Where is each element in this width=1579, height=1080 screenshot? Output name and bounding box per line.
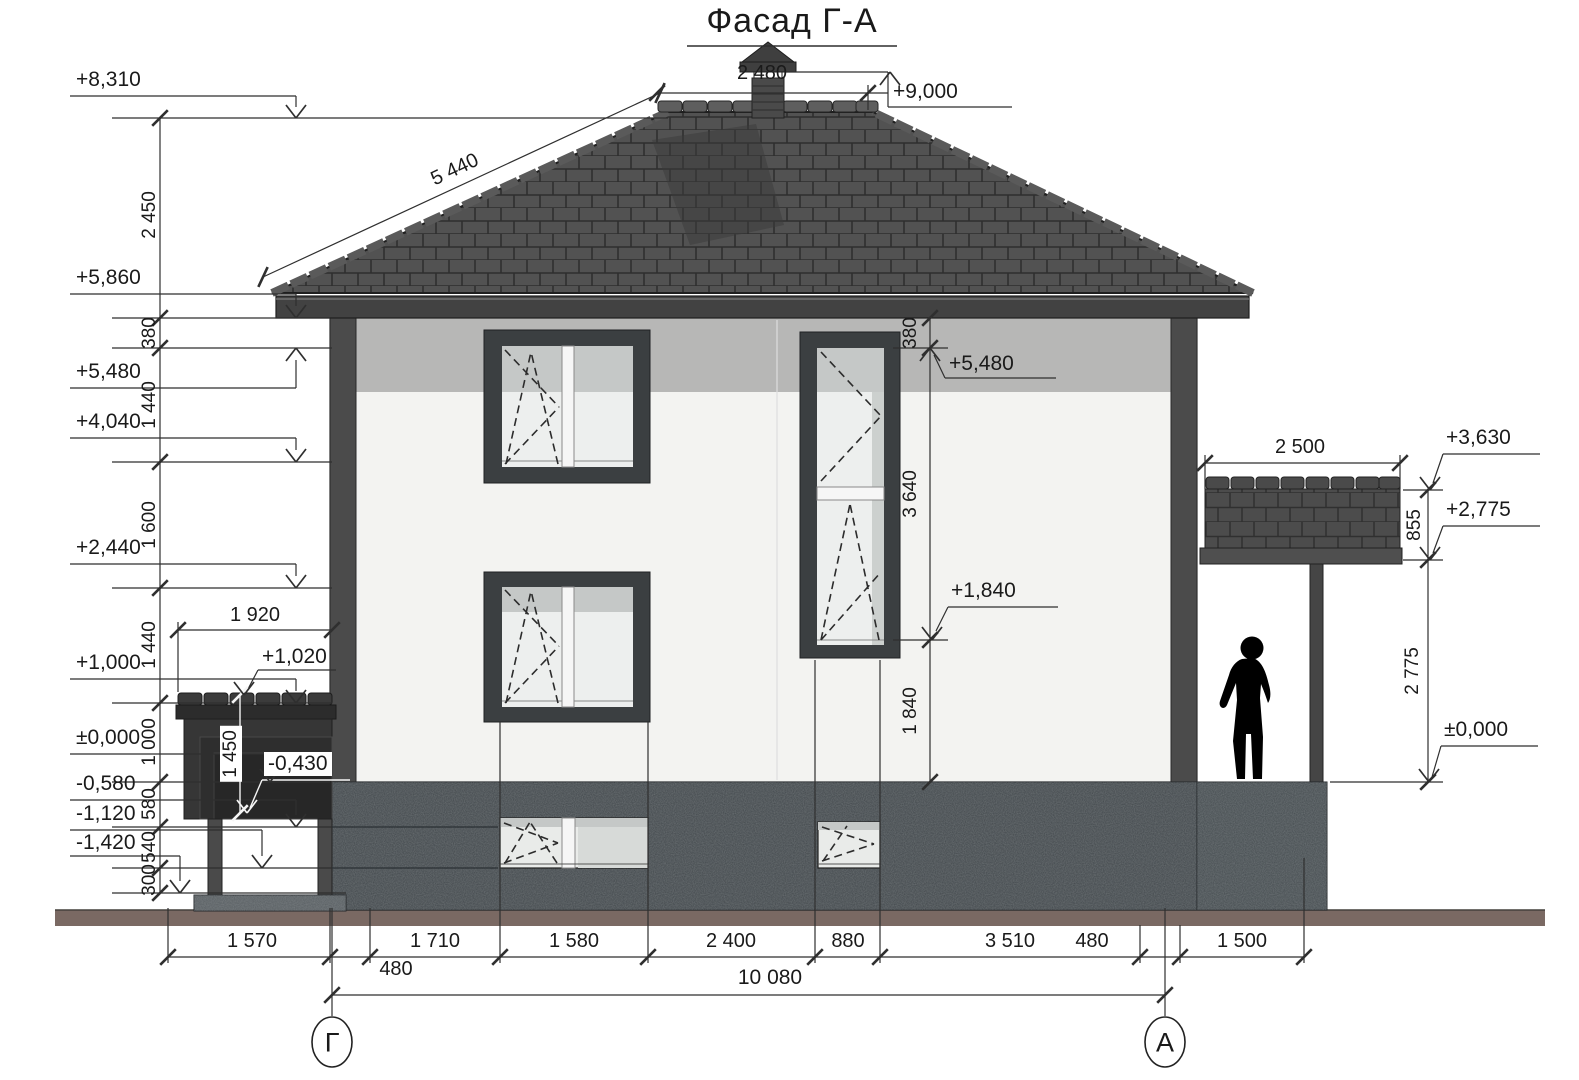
porch-ridge-caps bbox=[1206, 477, 1400, 489]
axis-bubbles bbox=[312, 1017, 1185, 1067]
main-wall bbox=[330, 318, 1197, 782]
dim-left-1440b: 1 440 bbox=[139, 621, 161, 669]
dim-left-2450: 2 450 bbox=[139, 191, 161, 239]
dim-bottom-offset-480: 480 bbox=[379, 958, 412, 981]
dim-roof-ridge: 2 480 bbox=[737, 62, 787, 85]
elevation-label-2440: +2,440 bbox=[76, 536, 141, 560]
dim-bottom-2400: 2 400 bbox=[706, 930, 756, 953]
dim-bottom-1710: 1 710 bbox=[410, 930, 460, 953]
person-silhouette bbox=[1220, 637, 1271, 780]
dim-left-540: 540 bbox=[139, 831, 161, 863]
elevation-label-zero-right: ±0,000 bbox=[1444, 718, 1508, 742]
dim-bottom-1570: 1 570 bbox=[227, 930, 277, 953]
elevation-label-4040: +4,040 bbox=[76, 410, 141, 434]
dim-left-1440a: 1 440 bbox=[139, 381, 161, 429]
dim-left-1000: 1 000 bbox=[139, 718, 161, 766]
elevation-label-zero-left: ±0,000 bbox=[76, 726, 140, 750]
elevation-label-minus1120: -1,120 bbox=[76, 802, 136, 826]
dim-porch-2775: 2 775 bbox=[1402, 647, 1424, 695]
dim-bottom-480: 480 bbox=[1075, 930, 1108, 953]
axis-marker-right: А bbox=[1156, 1028, 1174, 1059]
cellar-entrance bbox=[176, 693, 346, 911]
porch-fascia bbox=[1200, 548, 1402, 564]
corner-pillar-right bbox=[1171, 318, 1197, 782]
eaves-fascia bbox=[276, 296, 1249, 318]
cellar-post bbox=[318, 819, 332, 897]
elevation-label-chimney: +9,000 bbox=[893, 80, 958, 104]
cellar-post bbox=[208, 819, 222, 897]
elevation-label-1000: +1,000 bbox=[76, 651, 141, 675]
dim-cellar-height: 1 450 bbox=[220, 726, 242, 782]
elevation-label-5480-mid: +5,480 bbox=[949, 352, 1014, 376]
dim-left-300: 300 bbox=[139, 864, 161, 896]
facade-drawing: Фасад Г-А 5 440 2 480 +9,000 +8,310 +5,8… bbox=[0, 0, 1579, 1080]
elevation-label-5860: +5,860 bbox=[76, 266, 141, 290]
elevation-label-3630: +3,630 bbox=[1446, 426, 1511, 450]
ground-strip bbox=[55, 910, 1545, 926]
dim-left-380: 380 bbox=[139, 317, 161, 349]
window-mullion bbox=[562, 346, 574, 467]
dim-porch-855: 855 bbox=[1404, 509, 1426, 541]
dim-mid-3640: 3 640 bbox=[900, 470, 922, 518]
dim-bottom-1500: 1 500 bbox=[1217, 930, 1267, 953]
dim-bottom-1580: 1 580 bbox=[549, 930, 599, 953]
dim-bottom-880: 880 bbox=[831, 930, 864, 953]
elevation-label-minus1420: -1,420 bbox=[76, 831, 136, 855]
dim-overall-width: 10 080 bbox=[738, 966, 802, 990]
elevation-label-2775: +2,775 bbox=[1446, 498, 1511, 522]
window-transom bbox=[817, 487, 884, 500]
elevation-label-5480-left: +5,480 bbox=[76, 360, 141, 384]
chimney-cap bbox=[742, 42, 794, 62]
elevation-label-minus0580: -0,580 bbox=[76, 772, 136, 796]
dim-porch-width: 2 500 bbox=[1275, 436, 1325, 459]
wall-shade-band bbox=[356, 318, 1171, 392]
basement bbox=[330, 782, 1197, 910]
porch-canopy bbox=[1205, 489, 1400, 548]
drawing-title: Фасад Г-А bbox=[706, 2, 877, 41]
dim-cellar-width: 1 920 bbox=[230, 604, 280, 627]
dim-mid-380: 380 bbox=[900, 317, 922, 349]
elevation-label-1020: +1,020 bbox=[262, 645, 327, 669]
elevation-label-1840: +1,840 bbox=[951, 579, 1016, 603]
dim-left-1600: 1 600 bbox=[139, 501, 161, 549]
axis-marker-left: Г bbox=[325, 1028, 340, 1059]
dim-mid-1840: 1 840 bbox=[900, 687, 922, 735]
building-graphics bbox=[0, 0, 1579, 1080]
elevation-label-minus0430: -0,430 bbox=[264, 752, 332, 776]
dim-left-580: 580 bbox=[139, 788, 161, 820]
basement-window-left bbox=[500, 818, 648, 868]
porch-post bbox=[1310, 564, 1323, 782]
elevation-label-8310: +8,310 bbox=[76, 68, 141, 92]
window-stairwell bbox=[800, 332, 900, 658]
window-mullion bbox=[562, 587, 574, 707]
dim-bottom-3510: 3 510 bbox=[985, 930, 1035, 953]
